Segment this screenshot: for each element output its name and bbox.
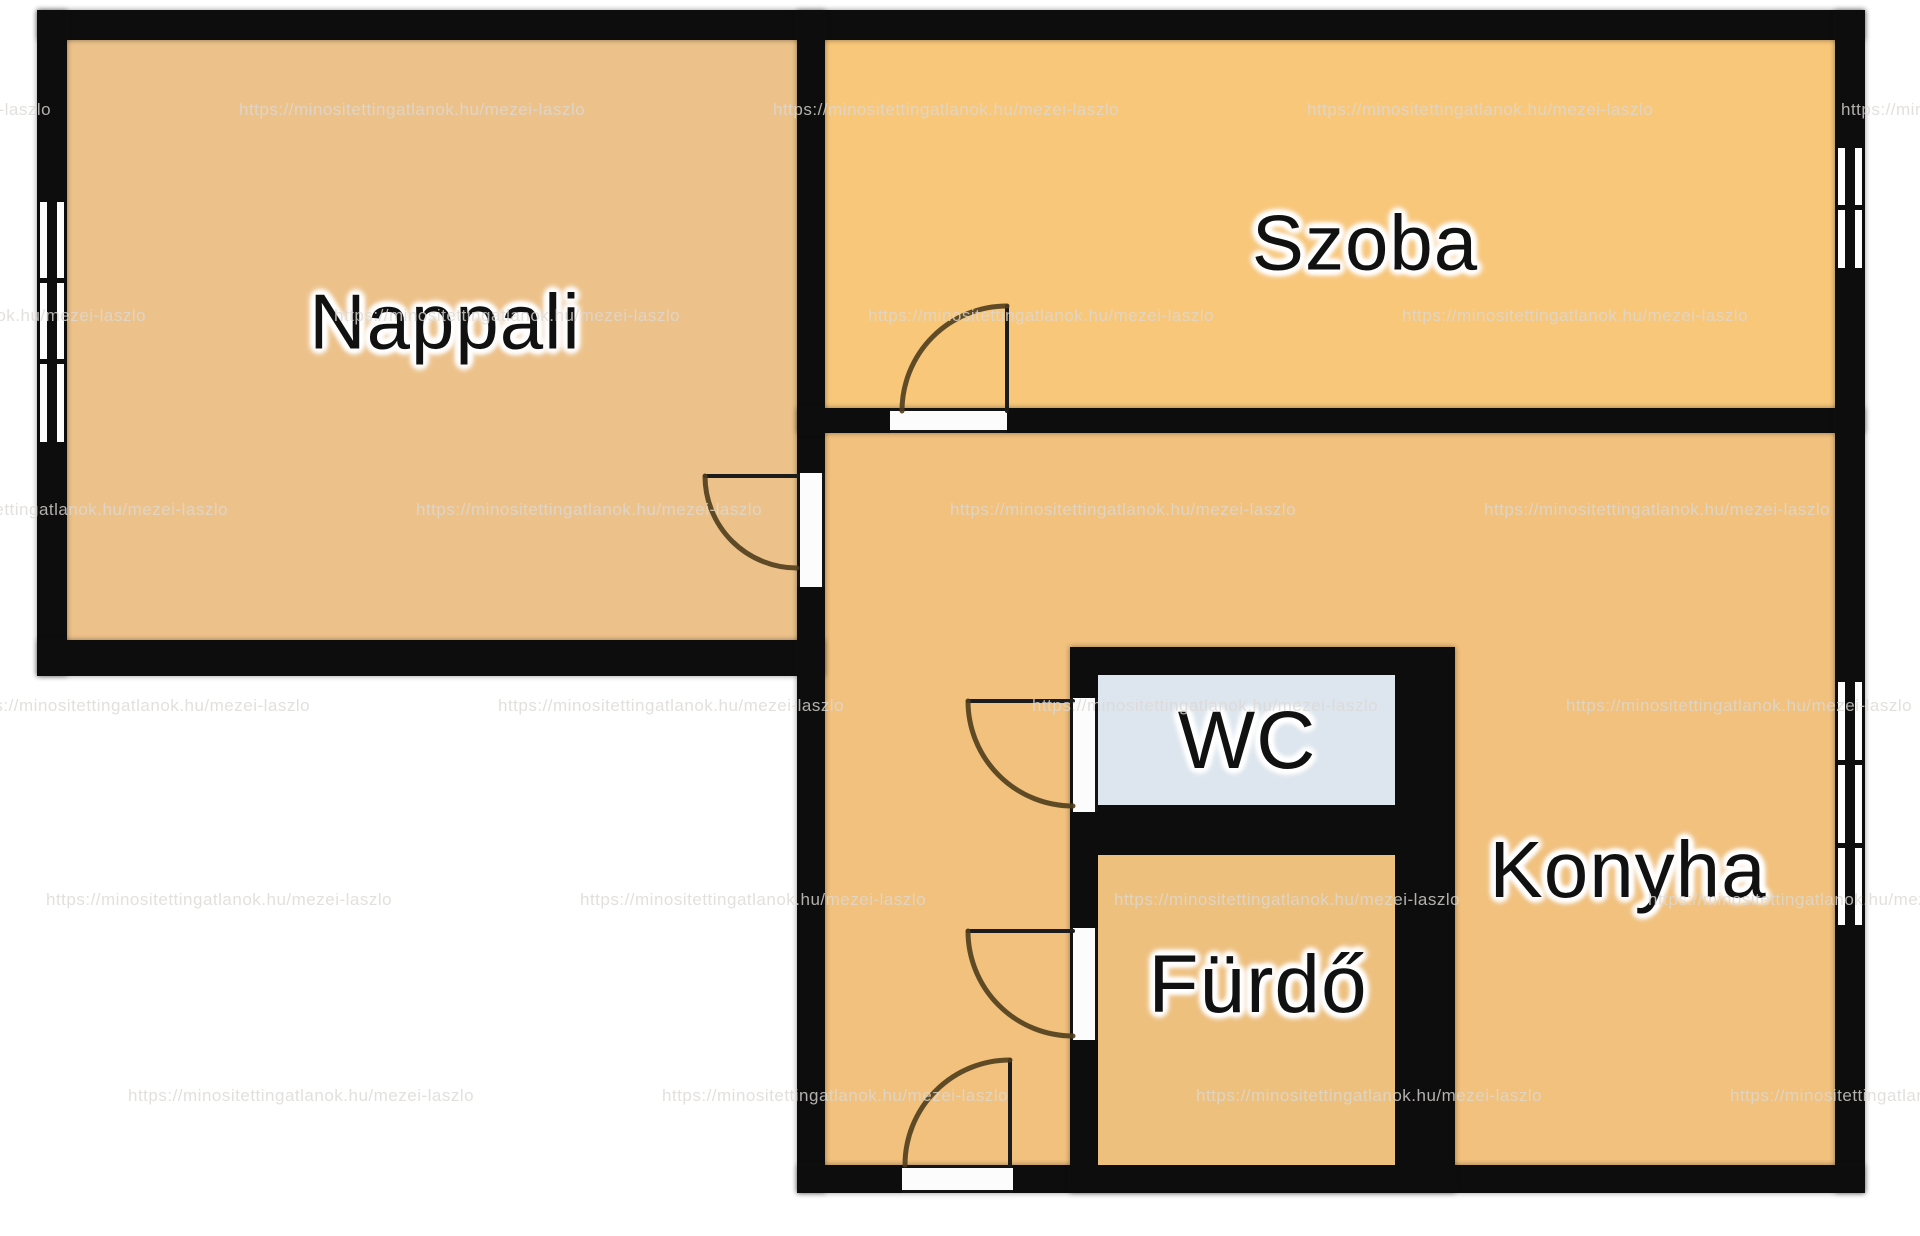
door-opening-entrance bbox=[902, 1165, 1013, 1193]
room-label-szoba: Szoba bbox=[1252, 198, 1478, 289]
door-opening-wc bbox=[1070, 698, 1098, 812]
room-label-wc: WC bbox=[1178, 694, 1317, 788]
door-opening-nappali bbox=[797, 473, 825, 587]
wall-nappali-bottom bbox=[37, 640, 825, 676]
room-label-nappali: Nappali bbox=[309, 277, 581, 368]
watermark-text: https://minositettingatlanok.hu/mezei-la… bbox=[128, 1086, 474, 1106]
window-szoba-right bbox=[1838, 143, 1862, 273]
wall-middle-vertical bbox=[797, 10, 825, 1193]
floorplan-canvas: Nappali Szoba Konyha WC Fürdő https://mi… bbox=[0, 0, 1920, 1236]
room-label-furdo: Fürdő bbox=[1148, 938, 1367, 1032]
door-opening-furdo bbox=[1070, 928, 1098, 1040]
watermark-text: https://minositettingatlanok.hu/mezei-la… bbox=[46, 890, 392, 910]
window-nappali-left bbox=[40, 197, 64, 447]
watermark-text: https://minositettingatlanok.hu/mezei-la… bbox=[0, 696, 310, 716]
wall-top bbox=[37, 10, 1865, 40]
door-opening-szoba bbox=[890, 408, 1007, 433]
room-label-konyha: Konyha bbox=[1489, 824, 1766, 916]
window-konyha-right bbox=[1838, 677, 1862, 930]
watermark-text: https://minositettingatlanok.hu/mezei-la… bbox=[498, 696, 844, 716]
